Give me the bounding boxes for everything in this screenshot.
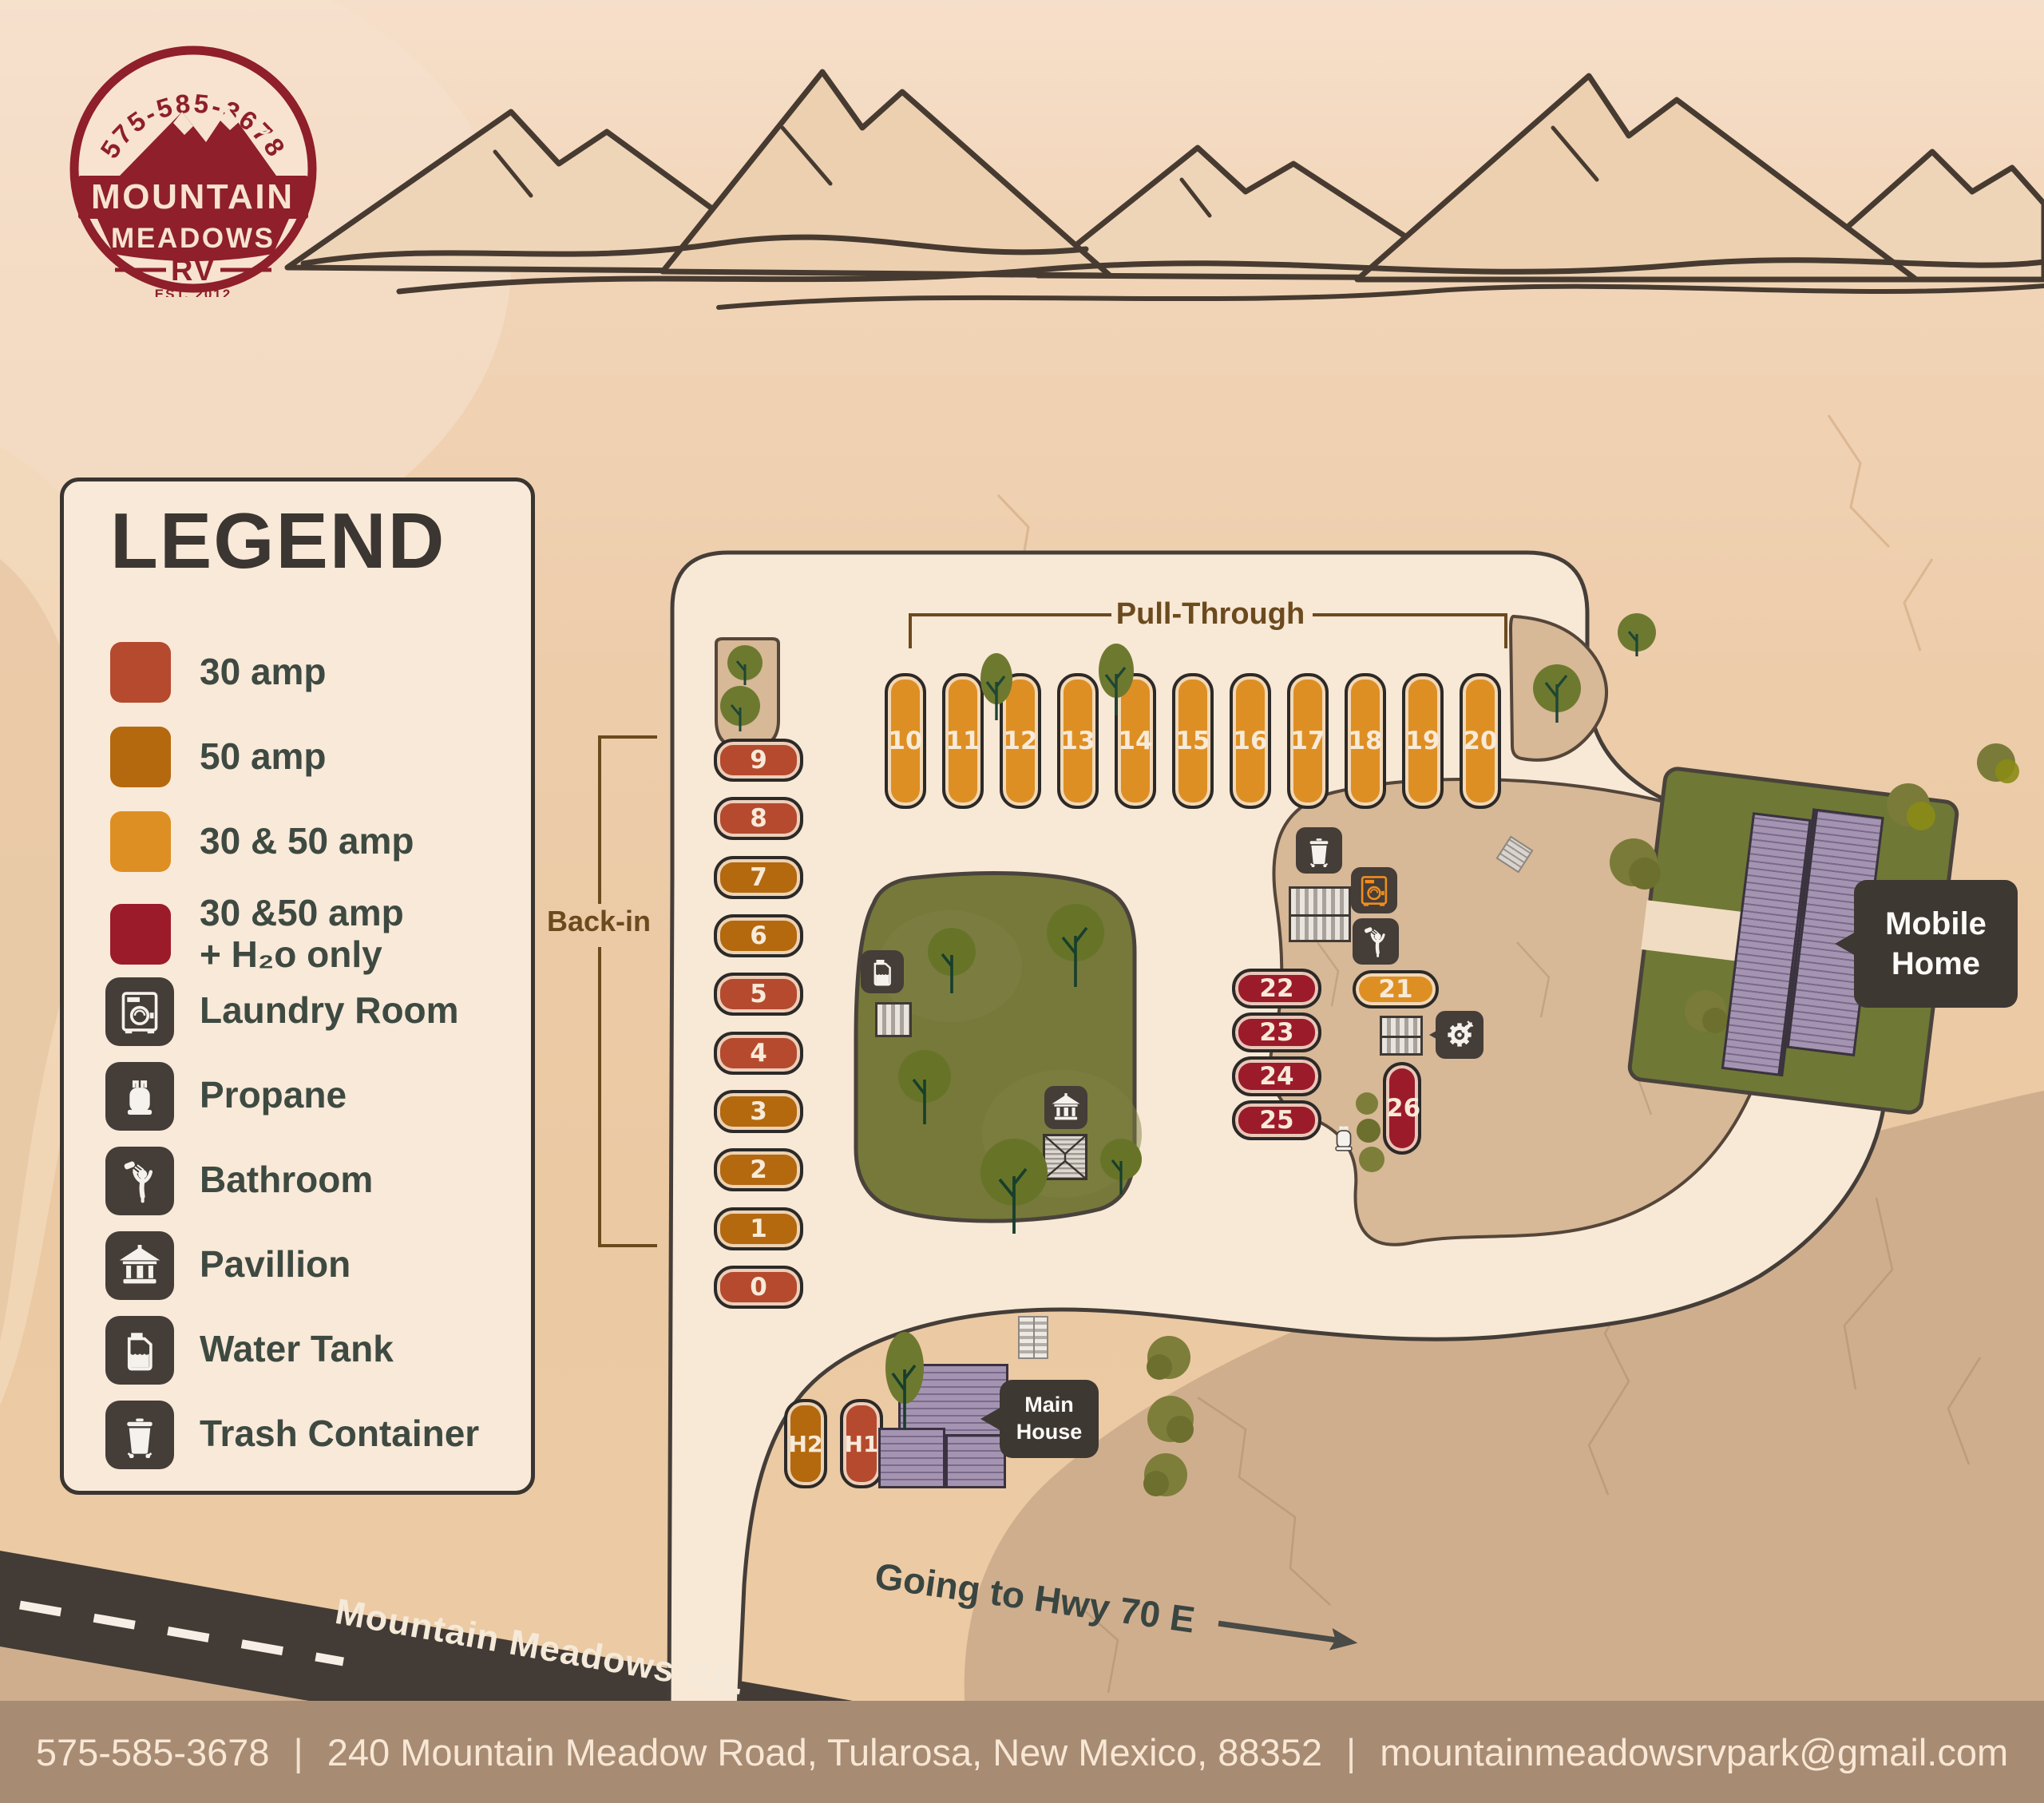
footer-bar: 575-585-3678 | 240 Mountain Meadow Road,… [0,1701,2044,1803]
site-0[interactable]: 0 [714,1266,803,1309]
gravel-patch [1511,616,1606,760]
panel-structure [1495,835,1533,873]
pavillion-icon [105,1231,174,1300]
site-23[interactable]: 23 [1232,1012,1321,1052]
maintenance-gear-icon [1436,1011,1483,1059]
site-22[interactable]: 22 [1232,969,1321,1008]
laundry-icon [105,977,174,1046]
site-13[interactable]: 13 [1057,673,1099,809]
mountain-range-illustration [287,72,2044,307]
site-H2[interactable]: H2 [784,1399,827,1488]
svg-text:MEADOWS: MEADOWS [111,223,275,254]
pull-through-label: Pull-Through [1108,597,1313,632]
park-shelter-roof [1043,1134,1087,1180]
park-logo: 575-585-3678 MOUNTAIN MEADOWS RV EST. 20… [65,42,321,297]
back-in-bracket-bottom [598,947,657,1247]
legend-row-propane: Propane [64,1056,531,1140]
legend-row-bathroom: Bathroom [64,1140,531,1225]
site-24[interactable]: 24 [1232,1056,1321,1096]
site-8[interactable]: 8 [714,797,803,840]
legend-row-30-50amp: 30 & 50 amp [64,802,531,886]
legend-title: LEGEND [110,496,446,586]
trash-icon [105,1401,174,1469]
site-17[interactable]: 17 [1287,673,1329,809]
site-3[interactable]: 3 [714,1090,803,1133]
rv-park-map-page: 575-585-3678 MOUNTAIN MEADOWS RV EST. 20… [0,0,2044,1803]
site-26[interactable]: 26 [1383,1062,1421,1155]
legend-row-trash: Trash Container [64,1394,531,1479]
propane-icon [105,1062,174,1131]
site-7[interactable]: 7 [714,856,803,899]
site-16[interactable]: 16 [1230,673,1271,809]
site-18[interactable]: 18 [1345,673,1386,809]
utility-structure [1380,1016,1423,1056]
legend-swatch-30amp [110,642,171,703]
site-9[interactable]: 9 [714,739,803,782]
site-1[interactable]: 1 [714,1207,803,1250]
legend-swatch-50amp [110,727,171,787]
park-fence-structure [875,1002,912,1037]
site-6[interactable]: 6 [714,914,803,957]
main-house-callout: Main House [1000,1380,1099,1458]
desert-mesa [965,1091,2044,1803]
site-11[interactable]: 11 [942,673,984,809]
legend-row-30amp: 30 amp [64,632,531,717]
site-10[interactable]: 10 [885,673,926,809]
site-25[interactable]: 25 [1232,1100,1321,1140]
legend-swatch-30-50amp-h2o [110,904,171,965]
site-21[interactable]: 21 [1353,970,1439,1008]
legend-row-30-50amp-h2o: 30 &50 amp + H₂o only [64,886,531,971]
pull-through-bracket-left [909,613,1111,648]
propane-icon [1330,1121,1357,1156]
site-H1[interactable]: H1 [840,1399,883,1488]
site-15[interactable]: 15 [1172,673,1214,809]
legend-row-laundry: Laundry Room [64,971,531,1056]
laundry-icon [1351,867,1397,913]
back-in-label: Back-in [532,905,666,938]
logo-established: EST. 2012 [155,287,232,297]
mobile-home-callout: Mobile Home [1854,880,2018,1008]
legend-swatch-30-50amp [110,811,171,872]
site-2[interactable]: 2 [714,1148,803,1191]
logo-title: MOUNTAIN [91,177,295,216]
park-green [856,874,1142,1222]
legend-row-pavillion: Pavillion [64,1225,531,1310]
site-4[interactable]: 4 [714,1032,803,1075]
bathroom-icon [105,1147,174,1215]
main-house-shed [1018,1316,1048,1359]
legend-row-50amp: 50 amp [64,717,531,802]
water-tank-icon [861,950,904,993]
bathroom-icon [1353,918,1399,965]
logo-rv: RV [171,254,216,287]
footer-phone: 575-585-3678 [36,1730,270,1774]
site-12[interactable]: 12 [1000,673,1041,809]
trash-icon [1296,827,1342,874]
arrow-right-icon [1213,1609,1359,1658]
pull-through-bracket-right [1313,613,1507,648]
legend-row-water-tank: Water Tank [64,1310,531,1394]
water-tank-icon [105,1316,174,1385]
road-name-label: Mountain Meadows Rd. [332,1591,827,1718]
gravel-patch [716,639,778,749]
pavillion-icon [1044,1086,1087,1129]
laundry-building [1289,886,1351,942]
site-20[interactable]: 20 [1460,673,1501,809]
site-19[interactable]: 19 [1402,673,1444,809]
footer-address: 240 Mountain Meadow Road, Tularosa, New … [327,1730,1322,1774]
highway-note: Going to Hwy 70 E [872,1554,1360,1664]
legend-panel: LEGEND 30 amp 50 amp 30 & 50 amp 30 &50 … [60,477,535,1495]
site-5[interactable]: 5 [714,973,803,1016]
site-14[interactable]: 14 [1115,673,1156,809]
footer-email[interactable]: mountainmeadowsrvpark@gmail.com [1380,1730,2008,1774]
back-in-bracket-top [598,735,657,904]
